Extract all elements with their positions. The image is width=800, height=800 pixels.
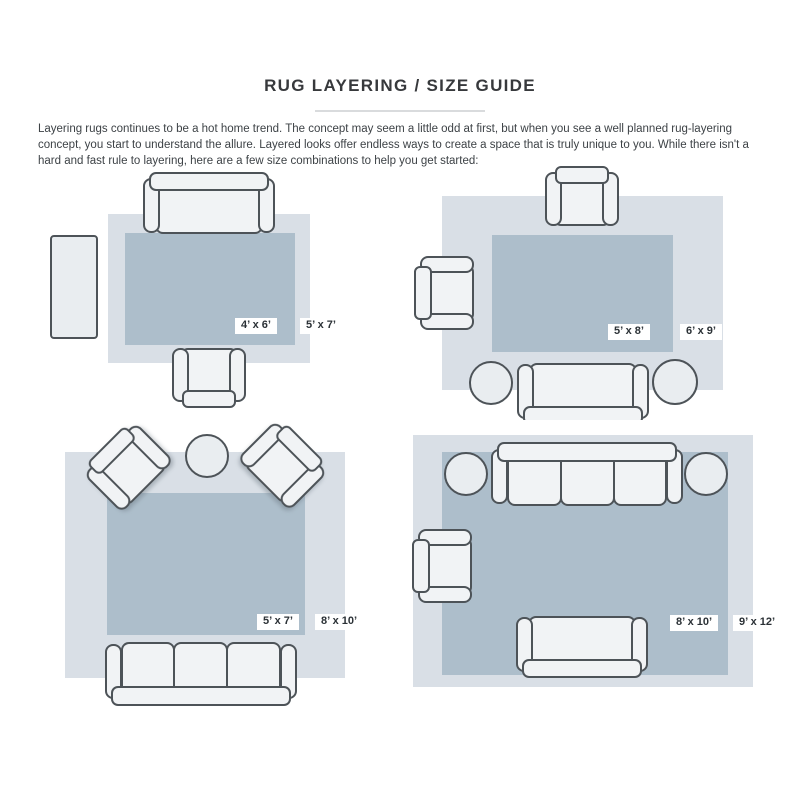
armchair bbox=[413, 530, 471, 602]
armchair bbox=[415, 257, 473, 329]
room-layout-3: 5’ x 7’ 8’ x 10’ bbox=[40, 420, 370, 720]
sofa bbox=[144, 173, 274, 233]
outer-rug-size-label: 6’ x 9’ bbox=[680, 324, 722, 340]
inner-rug-size-label: 5’ x 7’ bbox=[257, 614, 299, 630]
round-table bbox=[470, 362, 512, 404]
armchair bbox=[546, 167, 618, 225]
sofa bbox=[518, 364, 648, 420]
page-title: RUG LAYERING / SIZE GUIDE bbox=[0, 0, 800, 96]
three-seat-sofa bbox=[492, 443, 682, 505]
armchair bbox=[173, 349, 245, 407]
round-table bbox=[685, 453, 727, 495]
room-4-floorplan bbox=[400, 420, 780, 710]
side-table bbox=[51, 236, 97, 338]
inner-rug-size-label: 5’ x 8’ bbox=[608, 324, 650, 340]
inner-rug-size-label: 4’ x 6’ bbox=[235, 318, 277, 334]
room-3-floorplan bbox=[40, 420, 370, 720]
outer-rug-size-label: 8’ x 10’ bbox=[315, 614, 363, 630]
round-table bbox=[653, 360, 697, 404]
three-seat-sofa bbox=[106, 643, 296, 705]
round-table bbox=[445, 453, 487, 495]
outer-rug-size-label: 9’ x 12’ bbox=[733, 615, 781, 631]
room-2-floorplan bbox=[400, 165, 760, 420]
room-layout-4: 8’ x 10’ 9’ x 12’ bbox=[400, 420, 780, 710]
round-table bbox=[186, 435, 228, 477]
room-layout-1: 4’ x 6’ 5’ x 7’ bbox=[40, 165, 360, 415]
room-1-floorplan bbox=[40, 165, 360, 415]
intro-paragraph: Layering rugs continues to be a hot home… bbox=[38, 121, 754, 169]
rug-size-guide-page: RUG LAYERING / SIZE GUIDE Layering rugs … bbox=[0, 0, 800, 800]
inner-rug-size-label: 8’ x 10’ bbox=[670, 615, 718, 631]
loveseat bbox=[517, 617, 647, 677]
outer-rug-size-label: 5’ x 7’ bbox=[300, 318, 342, 334]
title-divider bbox=[315, 110, 485, 112]
room-layout-2: 5’ x 8’ 6’ x 9’ bbox=[400, 165, 760, 420]
header: RUG LAYERING / SIZE GUIDE Layering rugs … bbox=[0, 0, 800, 169]
